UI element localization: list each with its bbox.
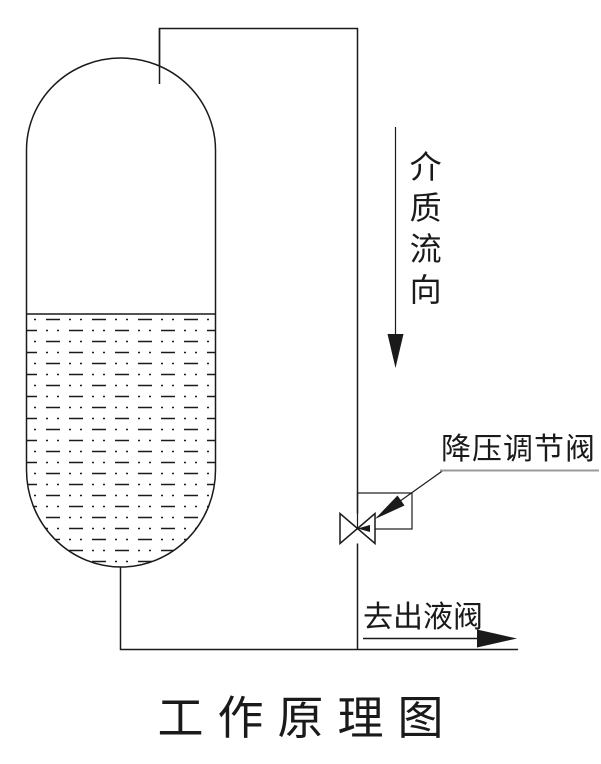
leader-arrowhead-icon — [375, 496, 405, 520]
flow-direction-label: 介质流向 — [406, 150, 440, 314]
valve-label-leader — [375, 471, 599, 520]
schematic-page: 介质流向 降压调节阀 去出液阀 工作原理图 — [0, 0, 601, 764]
outlet-arrowhead-icon — [477, 630, 517, 648]
flow-direction-arrow — [388, 127, 404, 368]
liquid-fill — [27, 314, 216, 567]
diagram-title: 工作原理图 — [0, 694, 601, 742]
to-outlet-valve-label: 去出液阀 — [363, 602, 483, 634]
flow-arrowhead-icon — [388, 334, 404, 368]
schematic-canvas — [0, 0, 601, 764]
pressure-reducing-valve-label: 降压调节阀 — [441, 434, 596, 466]
